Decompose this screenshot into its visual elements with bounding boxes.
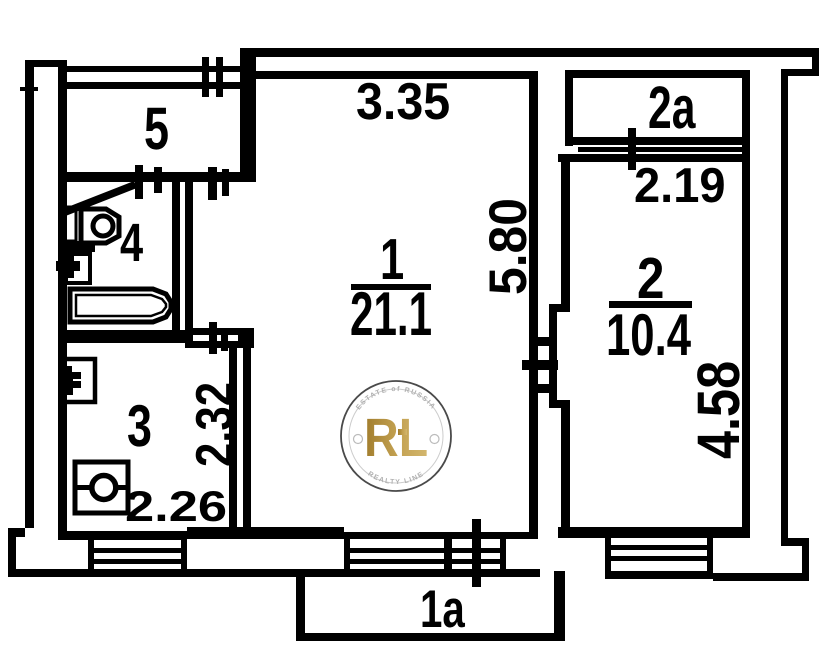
- svg-text:5: 5: [144, 95, 169, 162]
- svg-text:4: 4: [120, 213, 143, 273]
- svg-text:10.4: 10.4: [606, 302, 691, 368]
- svg-text:4.58: 4.58: [685, 361, 752, 459]
- svg-text:2.32: 2.32: [186, 382, 244, 467]
- svg-text:3: 3: [127, 393, 152, 459]
- svg-text:2.26: 2.26: [125, 483, 227, 531]
- svg-text:2.19: 2.19: [634, 159, 726, 213]
- svg-text:2a: 2a: [648, 74, 696, 141]
- svg-text:5.80: 5.80: [479, 198, 538, 295]
- svg-text:RL: RL: [364, 408, 428, 468]
- svg-text:21.1: 21.1: [350, 280, 432, 349]
- svg-text:3.35: 3.35: [356, 73, 450, 131]
- svg-text:1a: 1a: [420, 580, 465, 639]
